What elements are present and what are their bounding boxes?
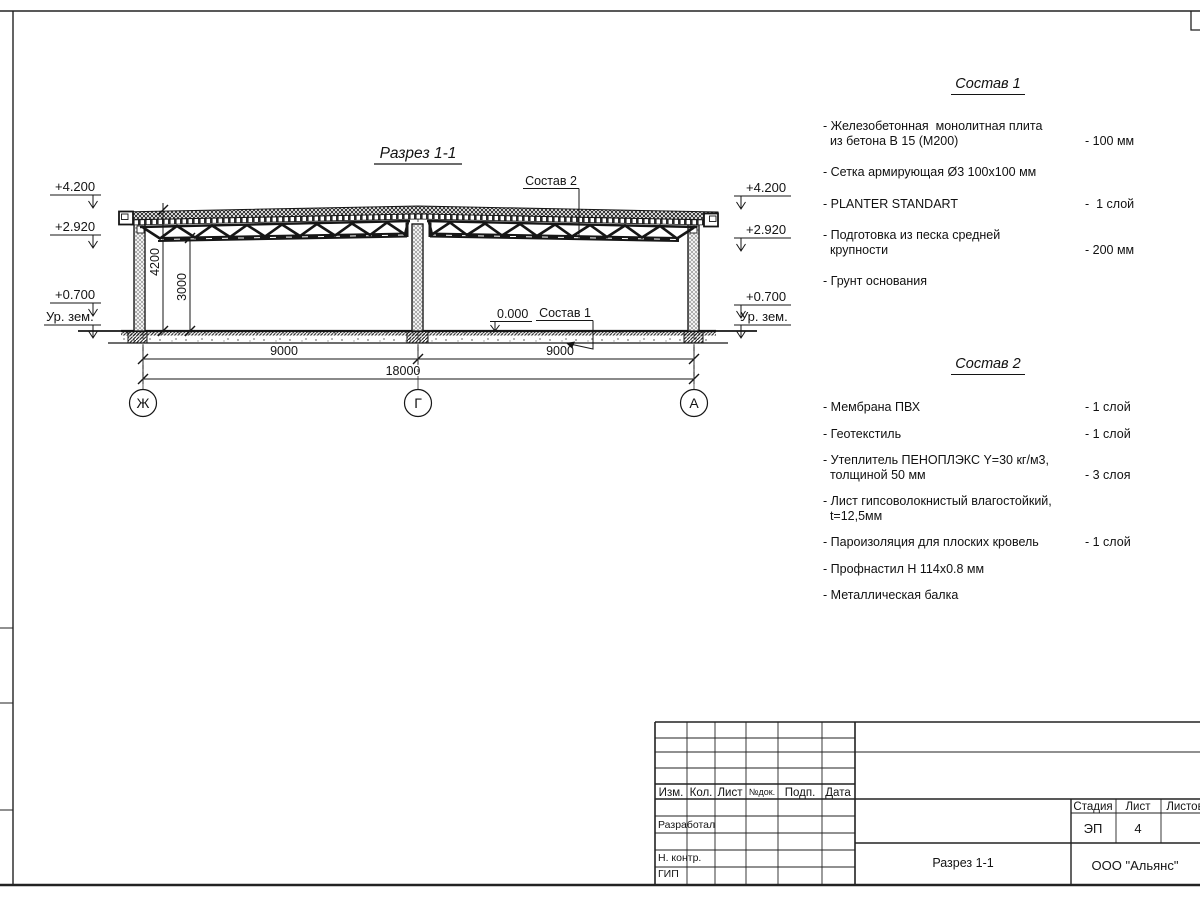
elev-4200-left: +4.200: [55, 179, 95, 194]
dim-3000: 3000: [175, 273, 189, 301]
level-zero-label: 0.000: [497, 307, 528, 321]
elev-0700-right: +0.700: [746, 289, 786, 304]
sostav2-panel: Состав 2 - Мембрана ПВХ- 1 слой - Геотек…: [823, 355, 1153, 615]
tb-col-ndok: №док.: [749, 787, 775, 797]
tb-doc-title: Разрез 1-1: [932, 856, 993, 870]
tb-stage-value: ЭП: [1084, 821, 1103, 836]
tb-col-data: Дата: [825, 787, 851, 799]
tb-sheet-label: Лист: [1126, 801, 1152, 813]
elev-2920-left: +2.920: [55, 219, 95, 234]
tb-col-list: Лист: [718, 787, 744, 799]
elev-4200-right: +4.200: [746, 180, 786, 195]
elev-0700-left: +0.700: [55, 287, 95, 302]
axis-label-mid: Г: [414, 395, 422, 411]
sostav1-panel: Состав 1 - Железобетонная монолитная пли…: [823, 75, 1153, 306]
tb-sheet-value: 4: [1134, 821, 1141, 836]
drawing-sheet: { "section": { "title": "Разрез 1-1", "e…: [0, 0, 1200, 900]
list-item: - Лист гипсоволокнистый влагостойкий, t=…: [823, 494, 1153, 523]
elevation-arrow: [737, 238, 746, 251]
sostav1-title: Состав 1: [951, 76, 1024, 95]
footing-left: [128, 331, 147, 343]
list-item: - Профнастил Н 114х0.8 мм: [823, 562, 1153, 577]
list-item: - Пароизоляция для плоских кровель- 1 сл…: [823, 535, 1153, 550]
sostav1-heading: Состав 1: [823, 75, 1153, 95]
tb-col-kol: Кол.: [690, 787, 713, 799]
level-zero-mark: [490, 322, 532, 332]
tb-sheets-label: Листов: [1166, 801, 1200, 813]
elev-ground-right: Ур. зем.: [740, 309, 788, 324]
column-right: [688, 221, 699, 331]
footing-right: [684, 331, 703, 343]
callout-sostav1-label: Состав 1: [539, 306, 591, 320]
tb-col-podp: Подп.: [785, 787, 816, 799]
dim-18000: 18000: [386, 364, 421, 378]
sostav2-title: Состав 2: [951, 356, 1024, 375]
sostav2-heading: Состав 2: [823, 355, 1153, 375]
tb-row-gip: ГИП: [658, 868, 679, 880]
list-item: - Сетка армирующая Ø3 100х100 мм: [823, 165, 1153, 180]
tb-stage-label: Стадия: [1073, 801, 1112, 813]
list-item: - Утеплитель ПЕНОПЛЭКС Y=30 кг/м3, толщи…: [823, 453, 1153, 482]
axis-label-right: А: [689, 395, 699, 411]
sostav2-items: - Мембрана ПВХ- 1 слой - Геотекстиль- 1 …: [823, 400, 1153, 603]
tb-row-nkontr: Н. контр.: [658, 852, 701, 864]
axis-label-left: Ж: [137, 395, 150, 411]
frame-corner-box: [1191, 11, 1200, 30]
tb-company: ООО "Альянс": [1092, 858, 1179, 873]
dim-4200: 4200: [148, 248, 162, 276]
list-item: - Железобетонная монолитная плита из бет…: [823, 119, 1153, 148]
elev-2920-right: +2.920: [746, 222, 786, 237]
list-item: - Геотекстиль- 1 слой: [823, 427, 1153, 442]
dim-9000-left: 9000: [270, 344, 298, 358]
axis-bubbles: Ж Г А: [130, 390, 708, 417]
elev-ground-left: Ур. зем.: [46, 309, 94, 324]
list-item: - Подготовка из песка средней крупности-…: [823, 228, 1153, 257]
tb-row-razrabotal: Разработал: [658, 819, 715, 831]
list-item: - PLANTER STANDART- 1 слой: [823, 197, 1153, 212]
list-item: - Мембрана ПВХ- 1 слой: [823, 400, 1153, 415]
list-item: - Металлическая балка: [823, 588, 1153, 603]
elevation-arrow: [89, 235, 98, 248]
section-title: Разрез 1-1: [380, 145, 457, 162]
elevation-arrow: [89, 195, 98, 208]
sostav1-items: - Железобетонная монолитная плита из бет…: [823, 119, 1153, 289]
callout-sostav2: Состав 2: [523, 174, 579, 239]
column-mid: [412, 224, 423, 331]
title-block-text: Изм. Кол. Лист №док. Подп. Дата Разработ…: [658, 787, 1200, 880]
callout-sostav2-label: Состав 2: [525, 174, 577, 188]
footing-mid: [407, 331, 428, 343]
column-left: [134, 221, 145, 331]
elevation-arrow: [737, 196, 746, 209]
list-item: - Грунт основания: [823, 274, 1153, 289]
tb-col-izm: Изм.: [659, 787, 684, 799]
